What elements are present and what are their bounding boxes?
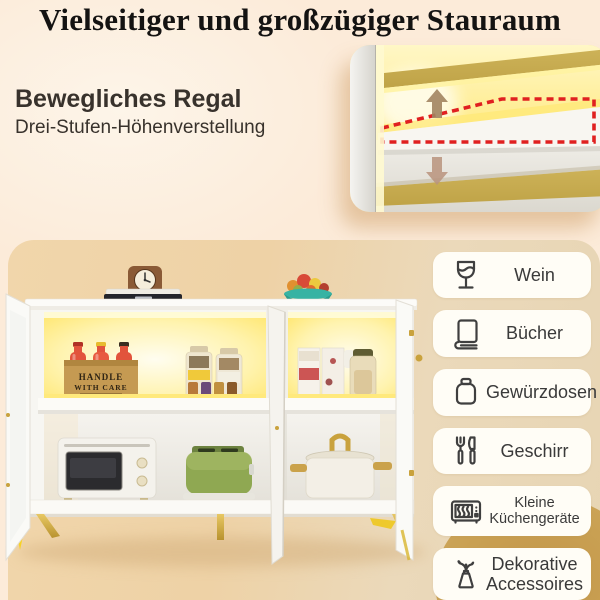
list-item-label: Wein (486, 265, 591, 285)
page-title: Vielseitiger und großzügiger Stauraum (0, 2, 600, 38)
gold-leg-center (217, 514, 224, 540)
door-edge (350, 45, 376, 212)
gold-leg-left (36, 514, 60, 538)
list-item-label: Kleine Küchengeräte (486, 495, 591, 527)
feature-text-block: Bewegliches Regal Drei-Stufen-Höhenverst… (15, 86, 265, 139)
list-item-small-appliances: Kleine Küchengeräte (433, 486, 591, 536)
cabinet-top-board (25, 299, 417, 307)
gold-door-knob (416, 355, 423, 362)
food-packages (298, 348, 376, 398)
list-item-label: Dekorative Accessoires (486, 554, 591, 594)
list-item-label: Bücher (486, 323, 591, 343)
list-item-label: Gewürzdosen (486, 382, 600, 402)
spice-jar-icon (446, 376, 486, 410)
cabinet-shadow (17, 537, 427, 567)
open-door-middle (268, 306, 285, 564)
microwave-icon (446, 494, 486, 528)
vase-icon (446, 557, 486, 591)
wine-glass-icon (446, 258, 486, 292)
crate-text-line1: HANDLE (79, 372, 124, 382)
list-item-label: Geschirr (486, 441, 591, 461)
middle-shelf (38, 398, 414, 410)
yellow-trim-accent-right (370, 518, 396, 529)
open-door-right (396, 300, 423, 560)
feature-heading: Bewegliches Regal (15, 86, 265, 114)
feature-subheading: Drei-Stufen-Höhenverstellung (15, 117, 265, 139)
cabinet-photo: HANDLE WITH CARE (0, 230, 440, 600)
list-item-dishes: Geschirr (433, 428, 591, 474)
product-infographic: Vielseitiger und großzügiger Stauraum Be… (0, 0, 600, 600)
book-icon (446, 317, 486, 351)
cabinet-bottom-board (30, 500, 414, 514)
cutlery-icon (446, 434, 486, 468)
crate-text-line2: WITH CARE (74, 383, 127, 392)
handle-with-care-crate: HANDLE WITH CARE (64, 360, 138, 398)
shelf-adjustment-inset (350, 45, 600, 212)
list-item-decor: Dekorative Accessoires (433, 548, 591, 600)
green-toaster (183, 446, 255, 500)
shelf-adjustment-diagram (350, 45, 600, 212)
list-item-wine: Wein (433, 252, 591, 298)
open-door-left (6, 294, 30, 560)
storage-type-list: Wein Bücher Gewürzdosen (433, 252, 591, 600)
list-item-books: Bücher (433, 310, 591, 357)
mini-oven (58, 438, 156, 501)
list-item-spice-jars: Gewürzdosen (433, 369, 591, 416)
